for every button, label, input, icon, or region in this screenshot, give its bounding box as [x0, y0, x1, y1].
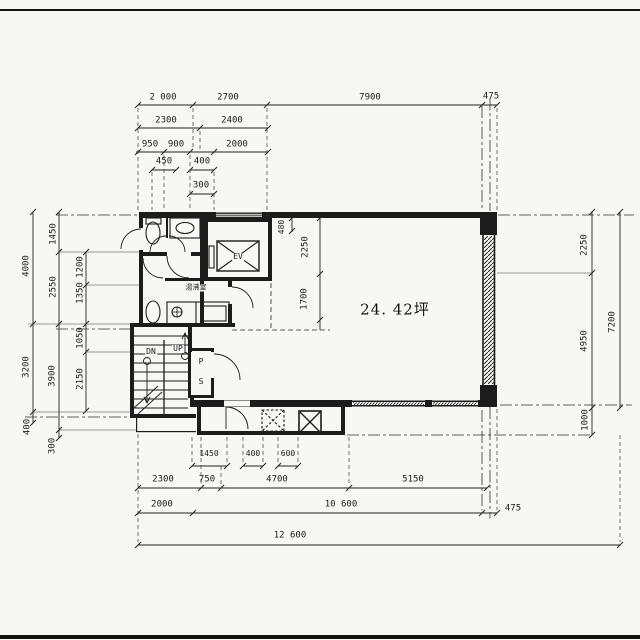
dimension-ticks [30, 102, 623, 548]
dim-right-4950: 4950 [581, 330, 590, 352]
kitchenette-label: 湯沸室 [185, 285, 208, 292]
dim-top-950: 950 [142, 141, 158, 150]
dim-top-2700: 2700 [217, 94, 239, 103]
dim-int-2250: 2250 [302, 236, 311, 258]
dim-bot-5150: 5150 [402, 476, 424, 485]
dim-int-480: 480 [278, 220, 286, 234]
dim-bot-2000: 2000 [151, 501, 173, 510]
dim-top-7900: 7900 [359, 94, 381, 103]
elevator-label: EV [232, 253, 244, 261]
dim-bot-400: 400 [246, 450, 260, 458]
dim-top-2000: 2 000 [149, 94, 176, 103]
dim-left-1050: 1050 [77, 327, 86, 349]
interior-dashed-lines [232, 283, 330, 330]
stairs-down-label: DN [145, 348, 157, 356]
pipe-shaft-p-label: P [199, 358, 204, 366]
floorplan-linework [0, 0, 640, 640]
dim-left-300: 300 [49, 438, 58, 454]
dim-int-1700: 1700 [301, 288, 310, 310]
dim-bot-1450: 1450 [199, 450, 218, 458]
dim-left-3200: 3200 [23, 356, 32, 378]
dim-left-1450: 1450 [50, 223, 59, 245]
floorplan-canvas: 2 000 2700 7900 475 2300 2400 950 900 20… [0, 0, 640, 640]
dim-right-2250: 2250 [581, 234, 590, 256]
dim-bot-10600: 10 600 [325, 501, 358, 510]
area-label: 24. 42坪 [360, 303, 430, 318]
dim-top-475: 475 [483, 93, 499, 102]
dim-left-1200: 1200 [77, 256, 86, 278]
dim-bot-12600: 12 600 [274, 532, 307, 541]
dim-bot-2300: 2300 [152, 476, 174, 485]
centerlines [25, 98, 634, 518]
dimension-lines [33, 105, 620, 545]
dim-top-450: 450 [156, 158, 172, 167]
dim-right-1000: 1000 [582, 409, 591, 431]
stairs-up-label: UP [172, 345, 184, 353]
walls [130, 212, 497, 435]
dim-left-2150: 2150 [77, 368, 86, 390]
dim-top-2300: 2300 [155, 117, 177, 126]
dim-left-2550: 2550 [50, 276, 59, 298]
dim-right-7200: 7200 [609, 311, 618, 333]
dim-left-4000: 4000 [23, 255, 32, 277]
dim-top-2000b: 2000 [226, 141, 248, 150]
dim-bot-750: 750 [199, 476, 215, 485]
dim-top-400: 400 [194, 158, 210, 167]
dim-left-3900: 3900 [49, 365, 58, 387]
dim-top-2400: 2400 [221, 117, 243, 126]
dim-bot-475: 475 [505, 505, 521, 514]
pipe-shaft-s-label: S [199, 378, 204, 386]
dim-bot-4700: 4700 [266, 476, 288, 485]
dim-top-300: 300 [193, 182, 209, 191]
dim-bot-600: 600 [281, 450, 295, 458]
dim-top-900: 900 [168, 141, 184, 150]
dim-left-1350: 1350 [77, 282, 86, 304]
dim-left-400: 400 [24, 419, 33, 435]
